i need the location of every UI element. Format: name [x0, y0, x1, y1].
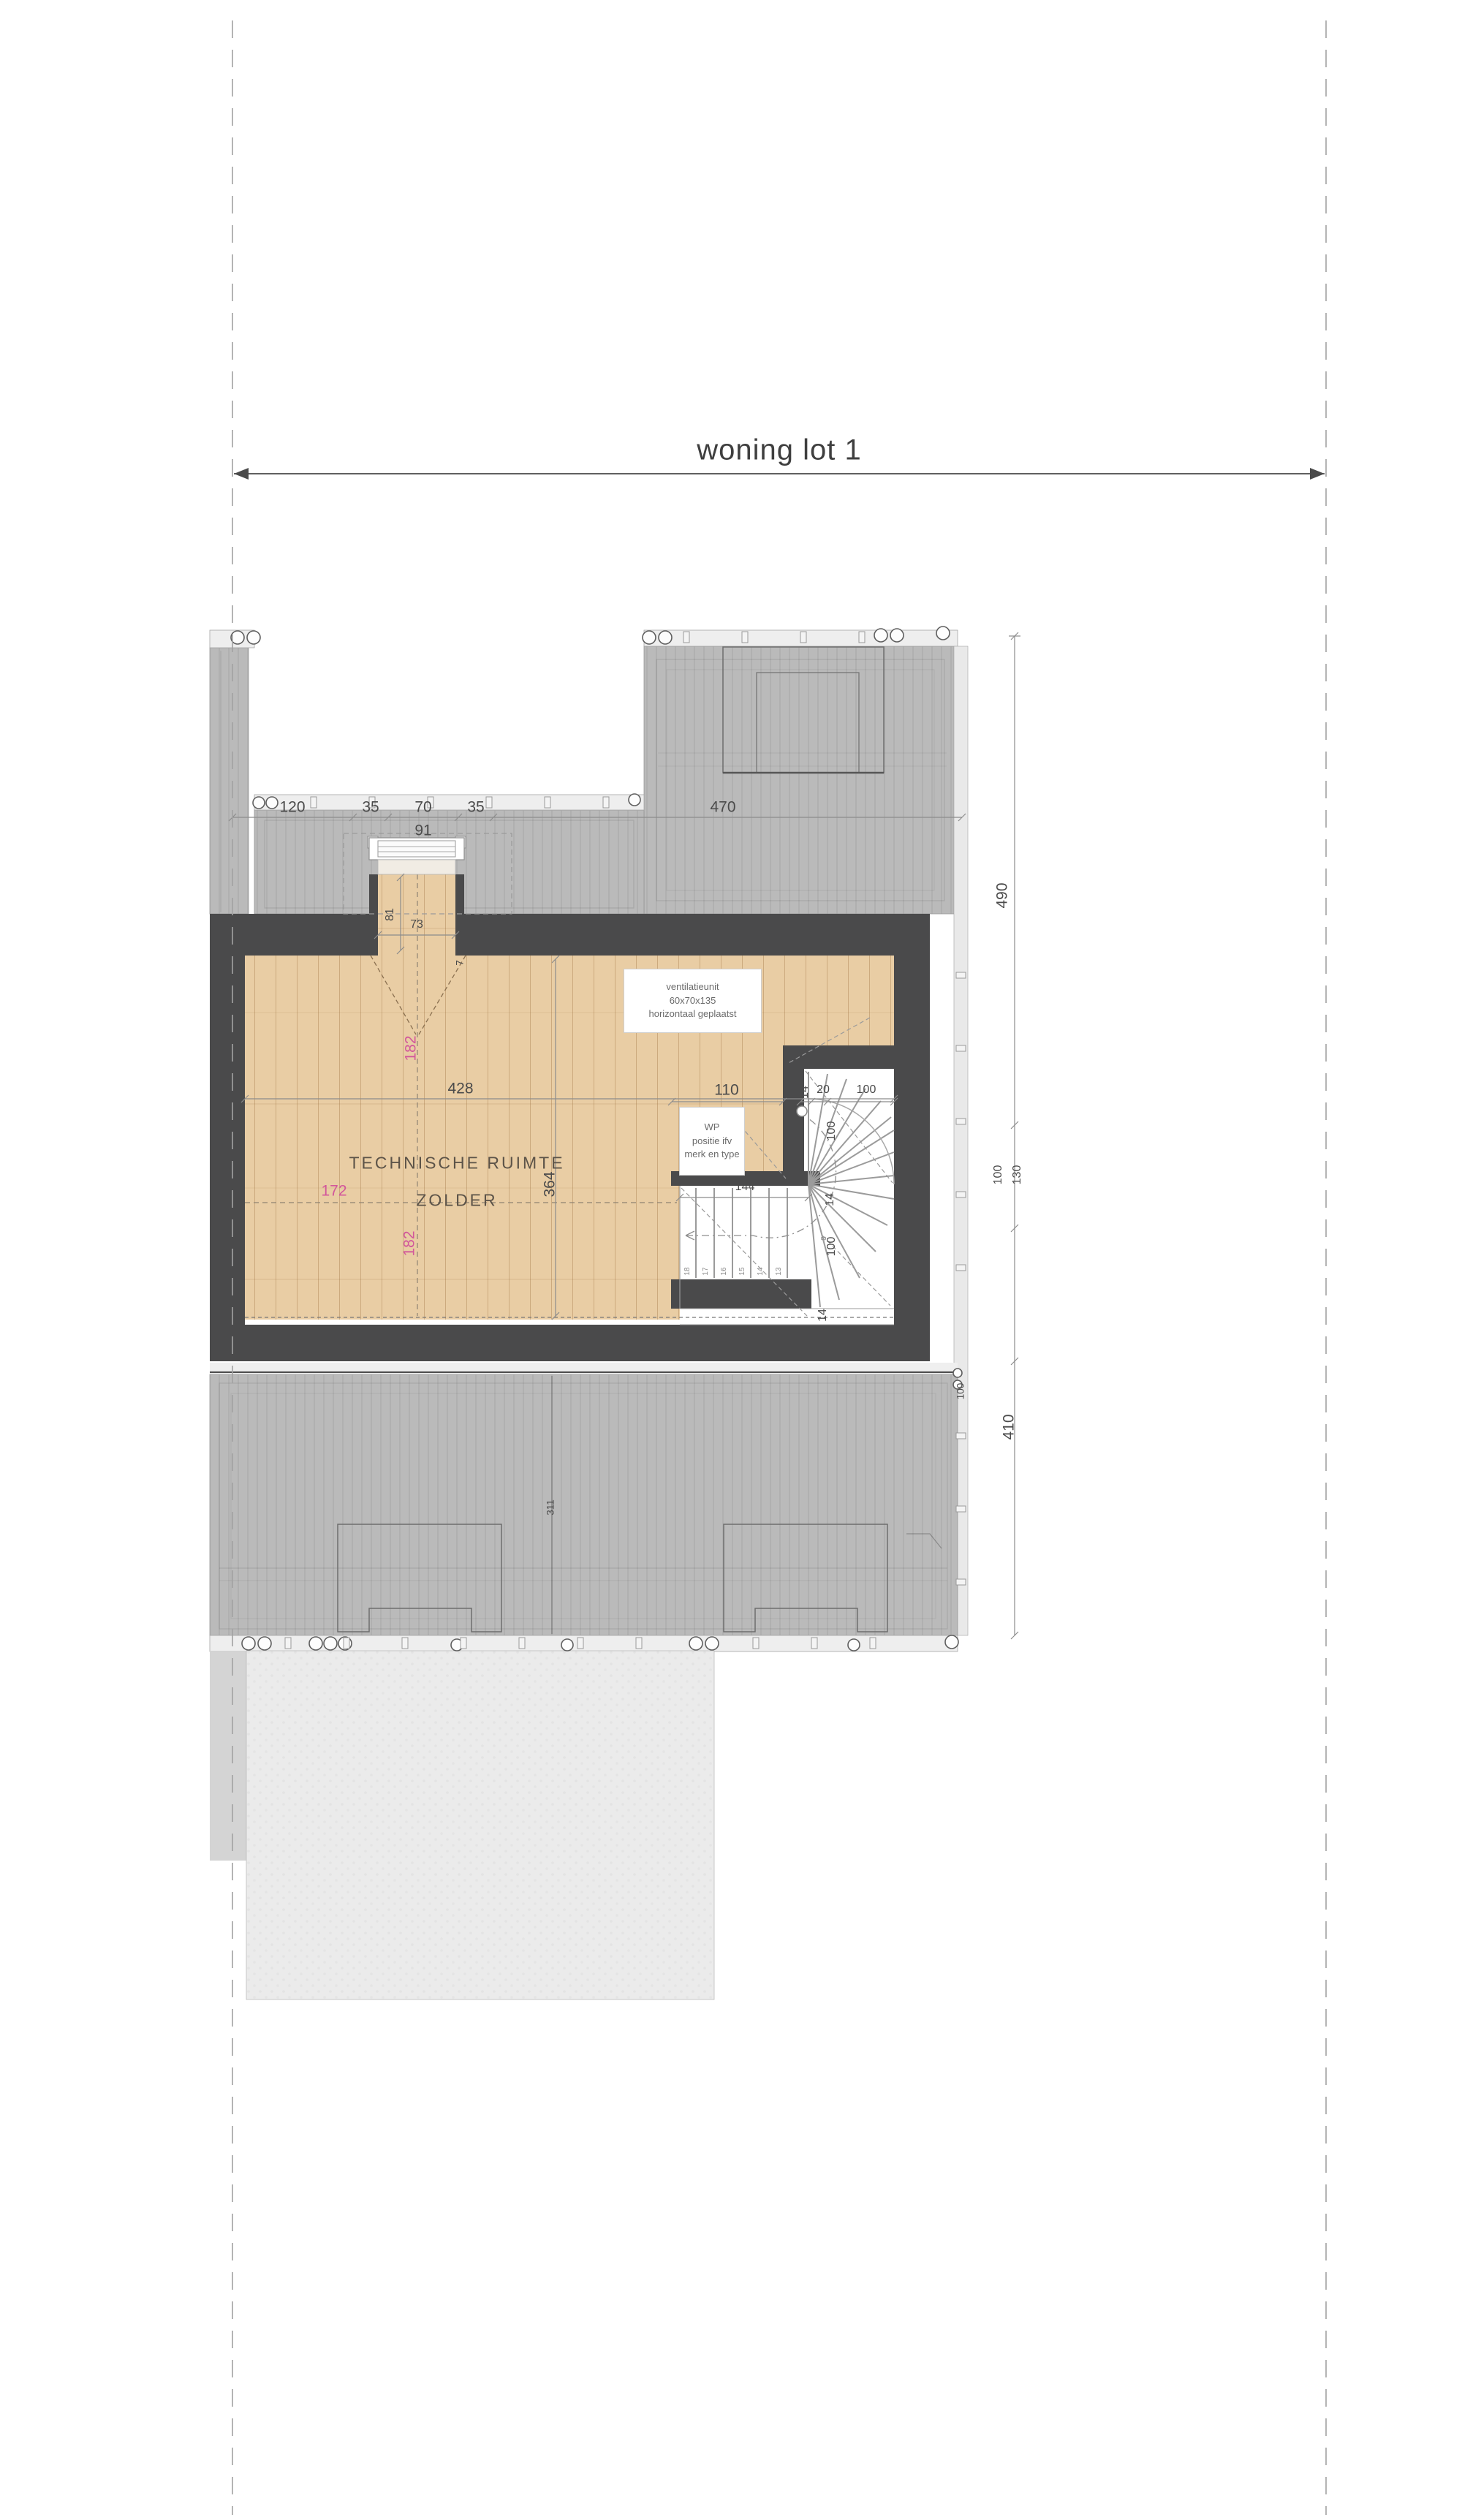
lot-dimension-arrow	[234, 468, 1325, 480]
patio	[210, 1651, 714, 1999]
dormer-window	[368, 836, 466, 874]
floorplan-drawing	[0, 0, 1462, 2520]
floorplan-page: woning lot 1 TECHNISCHE RUIMTE ZOLDER ve…	[0, 0, 1462, 2520]
